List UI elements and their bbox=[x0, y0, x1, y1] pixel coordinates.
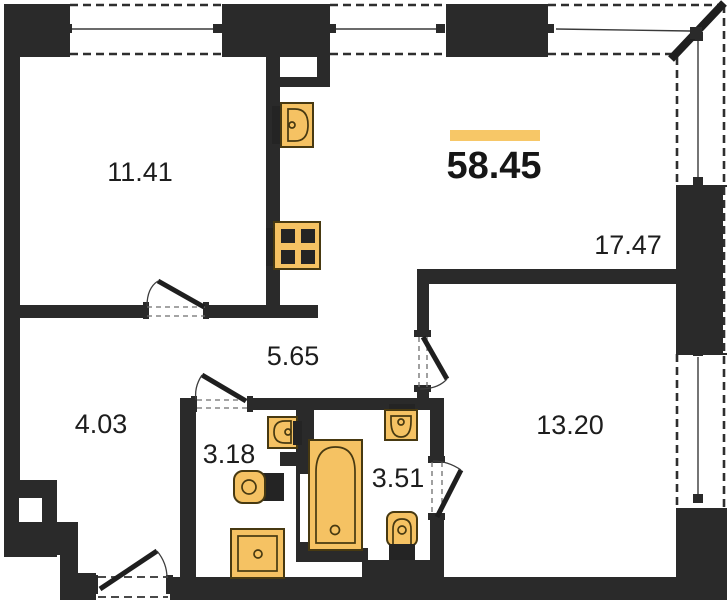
total-area-label: 58.45 bbox=[446, 145, 541, 187]
wc-washbasin bbox=[268, 417, 302, 448]
room-label-wc: 3.18 bbox=[203, 439, 256, 469]
area-labels: 58.45 11.41 17.47 5.65 4.03 3.18 3.51 13… bbox=[75, 130, 662, 493]
room-label-corridor: 4.03 bbox=[75, 409, 128, 439]
kitchen-sink bbox=[272, 103, 313, 147]
exterior-walls bbox=[4, 4, 727, 600]
washing-machine bbox=[231, 529, 284, 578]
entrance-door bbox=[91, 551, 173, 597]
bath-toilet bbox=[387, 512, 417, 560]
wall-niche bbox=[19, 498, 42, 522]
burner bbox=[301, 250, 315, 264]
burner bbox=[281, 229, 295, 243]
burner bbox=[301, 229, 315, 243]
room-label-living-kitchen: 17.47 bbox=[594, 230, 662, 260]
door-bathroom bbox=[428, 456, 461, 520]
room-label-bedroom1: 11.41 bbox=[107, 157, 173, 187]
wc-toilet bbox=[234, 471, 284, 503]
door-bedroom1 bbox=[143, 281, 209, 319]
door-bedroom2 bbox=[414, 330, 447, 392]
stove bbox=[266, 222, 320, 269]
bathtub bbox=[309, 440, 362, 550]
burner bbox=[281, 250, 295, 264]
bath-washbasin bbox=[385, 404, 417, 440]
window-glass-line bbox=[556, 29, 690, 31]
floor-plan: 58.45 11.41 17.47 5.65 4.03 3.18 3.51 13… bbox=[0, 0, 727, 600]
room-label-hallway: 5.65 bbox=[267, 341, 320, 371]
room-label-bedroom2: 13.20 bbox=[536, 410, 604, 440]
door-wc bbox=[191, 375, 253, 412]
floor-plan-drawing: 58.45 11.41 17.47 5.65 4.03 3.18 3.51 13… bbox=[0, 0, 727, 600]
total-area-bar bbox=[450, 130, 540, 141]
room-label-bathroom: 3.51 bbox=[372, 463, 425, 493]
